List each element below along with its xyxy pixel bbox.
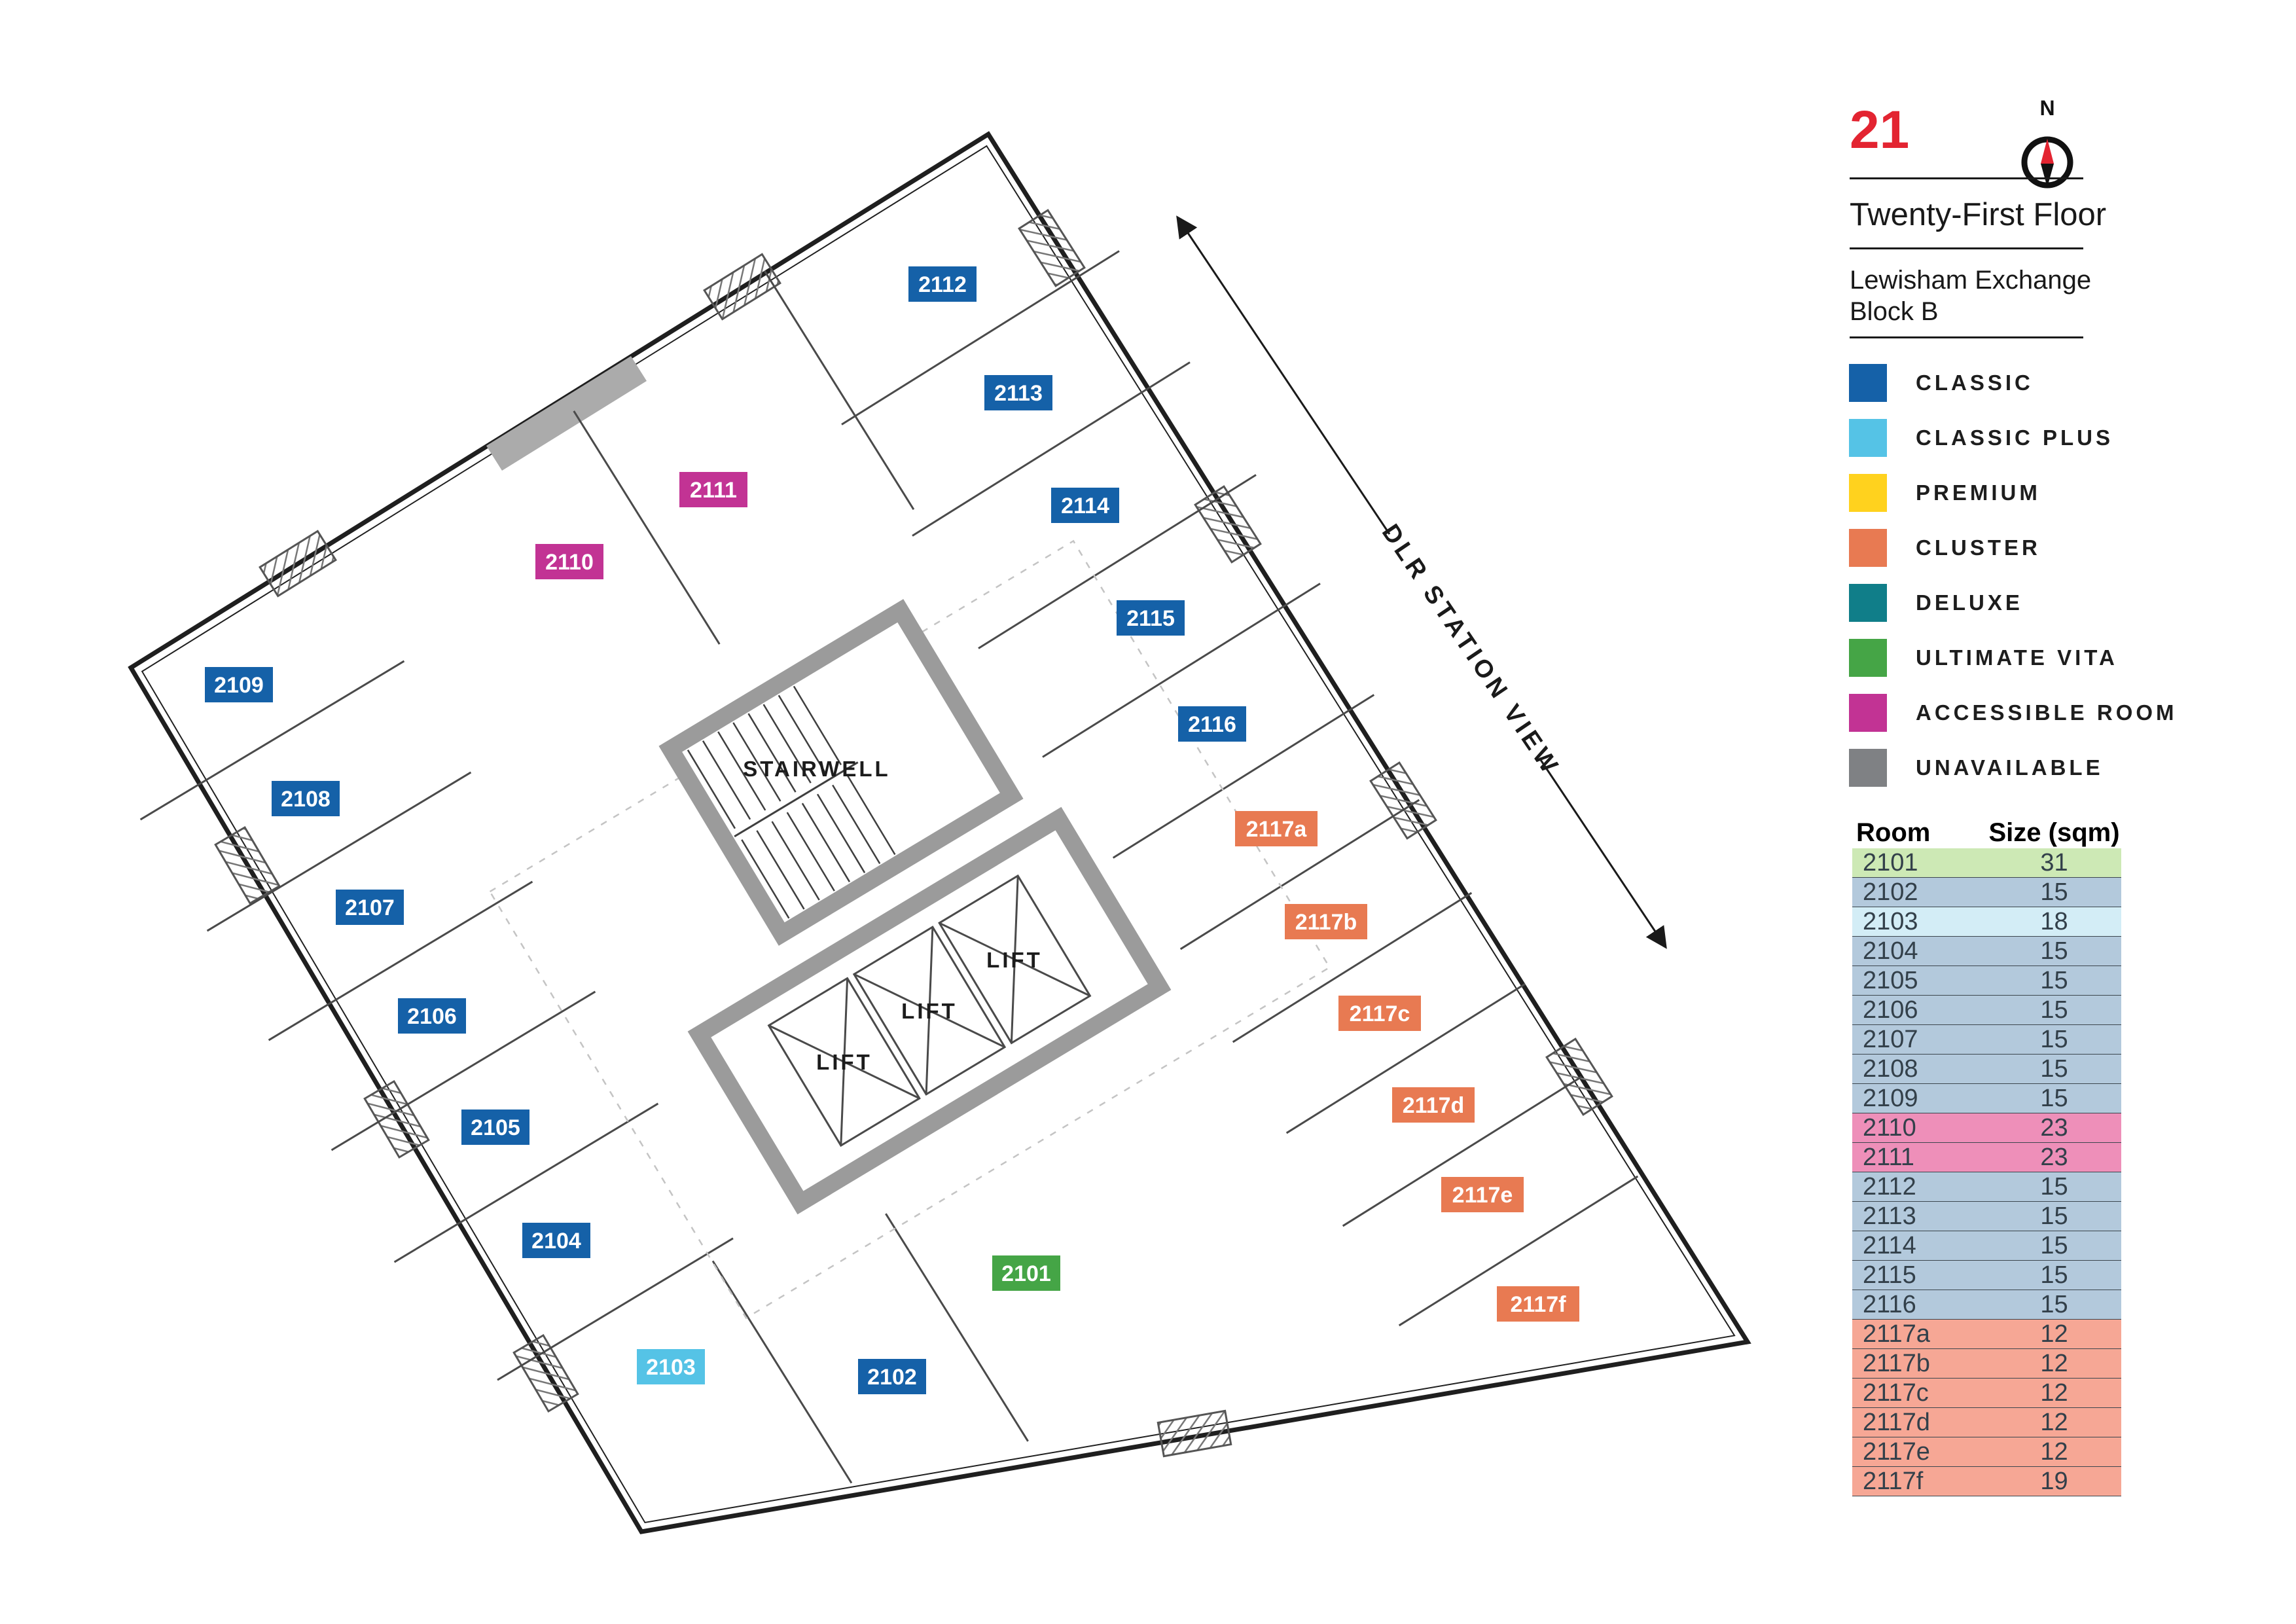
room-badge-label: 2117c <box>1350 1001 1410 1026</box>
room-badge-label: 2104 <box>531 1229 581 1254</box>
room-badge-label: 2106 <box>407 1004 457 1029</box>
room-badge-label: 2115 <box>1126 606 1175 631</box>
room-badge-2106: 2106 <box>398 998 466 1034</box>
room-badge-label: 2110 <box>545 550 594 575</box>
room-badge-label: 2117f <box>1510 1292 1566 1317</box>
room-badge-2107: 2107 <box>336 890 404 925</box>
floor-plan: STAIRWELL LIFT LIFT LIFT DLR STATION VIE… <box>0 0 2296 1624</box>
room-badge-label: 2117e <box>1452 1183 1513 1208</box>
room-badge-2103: 2103 <box>637 1349 705 1384</box>
room-badge-2117e: 2117e <box>1441 1177 1524 1212</box>
room-badge-2102: 2102 <box>858 1359 926 1394</box>
room-badge-label: 2108 <box>281 787 331 812</box>
room-badge-2117f: 2117f <box>1497 1286 1579 1322</box>
lift-label: LIFT <box>986 948 1043 972</box>
room-badge-label: 2117b <box>1295 910 1357 935</box>
room-badge-2104: 2104 <box>522 1223 590 1258</box>
room-badge-label: 2105 <box>471 1115 520 1140</box>
room-badge-label: 2116 <box>1188 712 1236 737</box>
room-badge-label: 2111 <box>690 478 737 503</box>
room-badge-label: 2109 <box>214 673 264 698</box>
room-badge-2111: 2111 <box>679 472 747 507</box>
lift-label: LIFT <box>816 1050 872 1074</box>
page: STAIRWELL LIFT LIFT LIFT DLR STATION VIE… <box>0 0 2296 1624</box>
room-badge-2108: 2108 <box>272 781 340 816</box>
room-badge-label: 2101 <box>1001 1261 1051 1286</box>
room-badge-2112: 2112 <box>908 266 977 302</box>
dlr-station-view-label: DLR STATION VIEW <box>1376 520 1565 781</box>
lift-label: LIFT <box>901 999 958 1023</box>
room-badge-label: 2103 <box>646 1355 696 1380</box>
room-badge-label: 2114 <box>1061 494 1109 518</box>
room-badge-2117d: 2117d <box>1392 1087 1475 1123</box>
room-badge-2117c: 2117c <box>1338 996 1421 1031</box>
room-badge-2116: 2116 <box>1178 706 1246 742</box>
room-badge-label: 2117d <box>1403 1093 1465 1118</box>
room-badge-2109: 2109 <box>205 667 273 702</box>
room-badge-2115: 2115 <box>1117 600 1185 636</box>
room-badge-2113: 2113 <box>984 375 1052 410</box>
room-badge-2117a: 2117a <box>1235 811 1318 846</box>
stairwell-label: STAIRWELL <box>743 757 890 781</box>
room-badge-2117b: 2117b <box>1285 904 1367 939</box>
room-badge-label: 2102 <box>867 1365 917 1390</box>
room-badge-2110: 2110 <box>535 544 603 579</box>
room-badge-label: 2113 <box>994 381 1043 406</box>
room-badge-2105: 2105 <box>461 1110 529 1145</box>
room-badge-label: 2117a <box>1246 817 1308 842</box>
room-badge-2101: 2101 <box>992 1255 1060 1291</box>
room-badge-label: 2107 <box>345 895 395 920</box>
room-badge-label: 2112 <box>918 272 967 297</box>
room-badge-2114: 2114 <box>1051 488 1119 523</box>
